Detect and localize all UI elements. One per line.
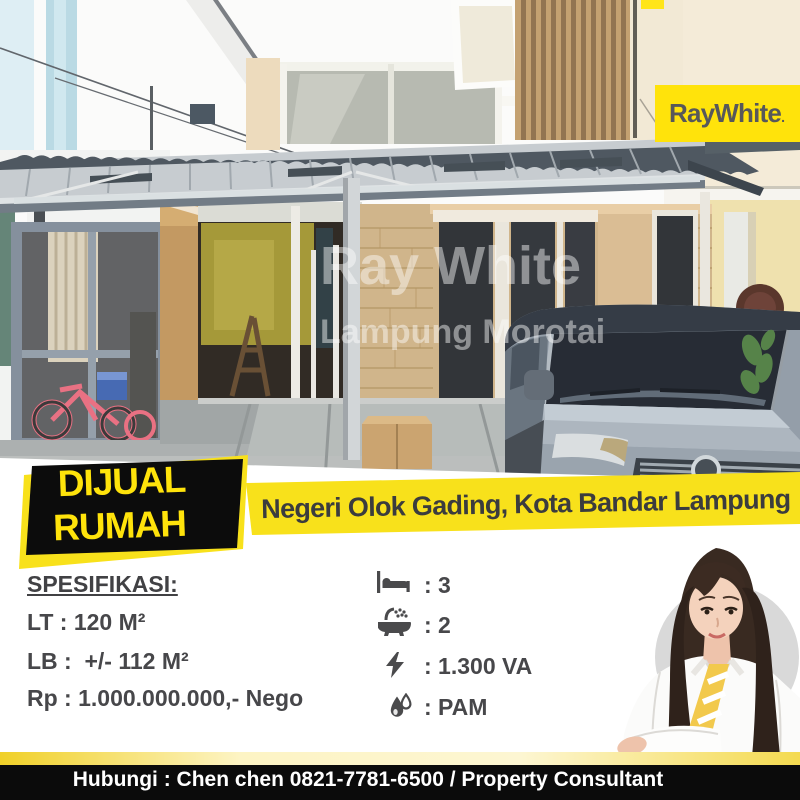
svg-text:DIJUAL: DIJUAL	[57, 459, 186, 504]
svg-text:RUMAH: RUMAH	[53, 503, 187, 549]
svg-text:Lampung Morotai: Lampung Morotai	[320, 313, 605, 351]
svg-text:Ray White: Ray White	[320, 236, 581, 296]
